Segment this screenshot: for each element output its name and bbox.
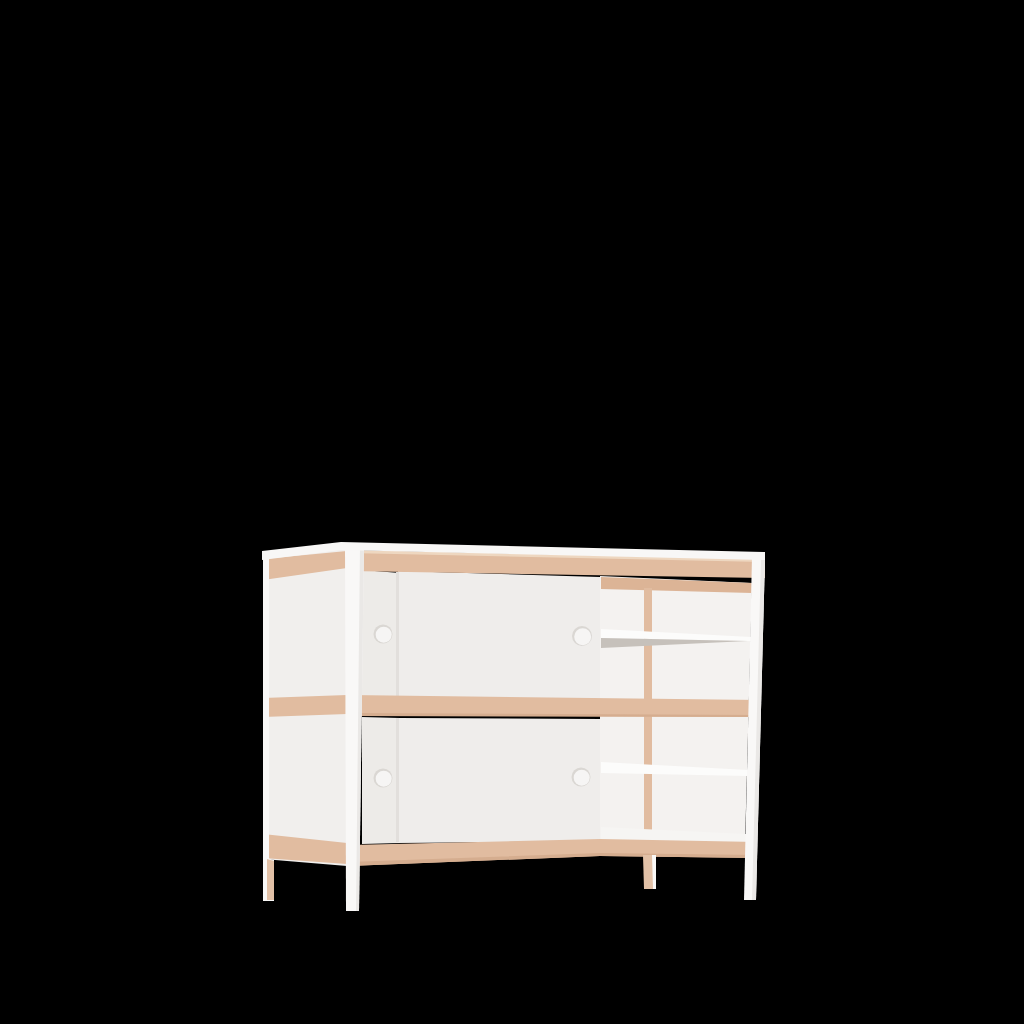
backdrop [0,0,1024,1024]
dresser-frame [262,542,765,911]
door-lower-seam [396,718,399,842]
finger-hole [376,771,392,787]
rear-left-leg-wood-face [267,859,274,900]
side-rail-middle [263,695,347,717]
finger-hole [376,627,392,643]
furniture-render [0,0,1024,1024]
door-upper-right [398,571,600,699]
finger-hole [574,628,591,645]
finger-hole [574,770,590,786]
door-lower-right [398,718,600,843]
side-back-edge [263,556,269,859]
door-upper-seam [396,572,399,697]
product-render-stage [0,0,1024,1024]
